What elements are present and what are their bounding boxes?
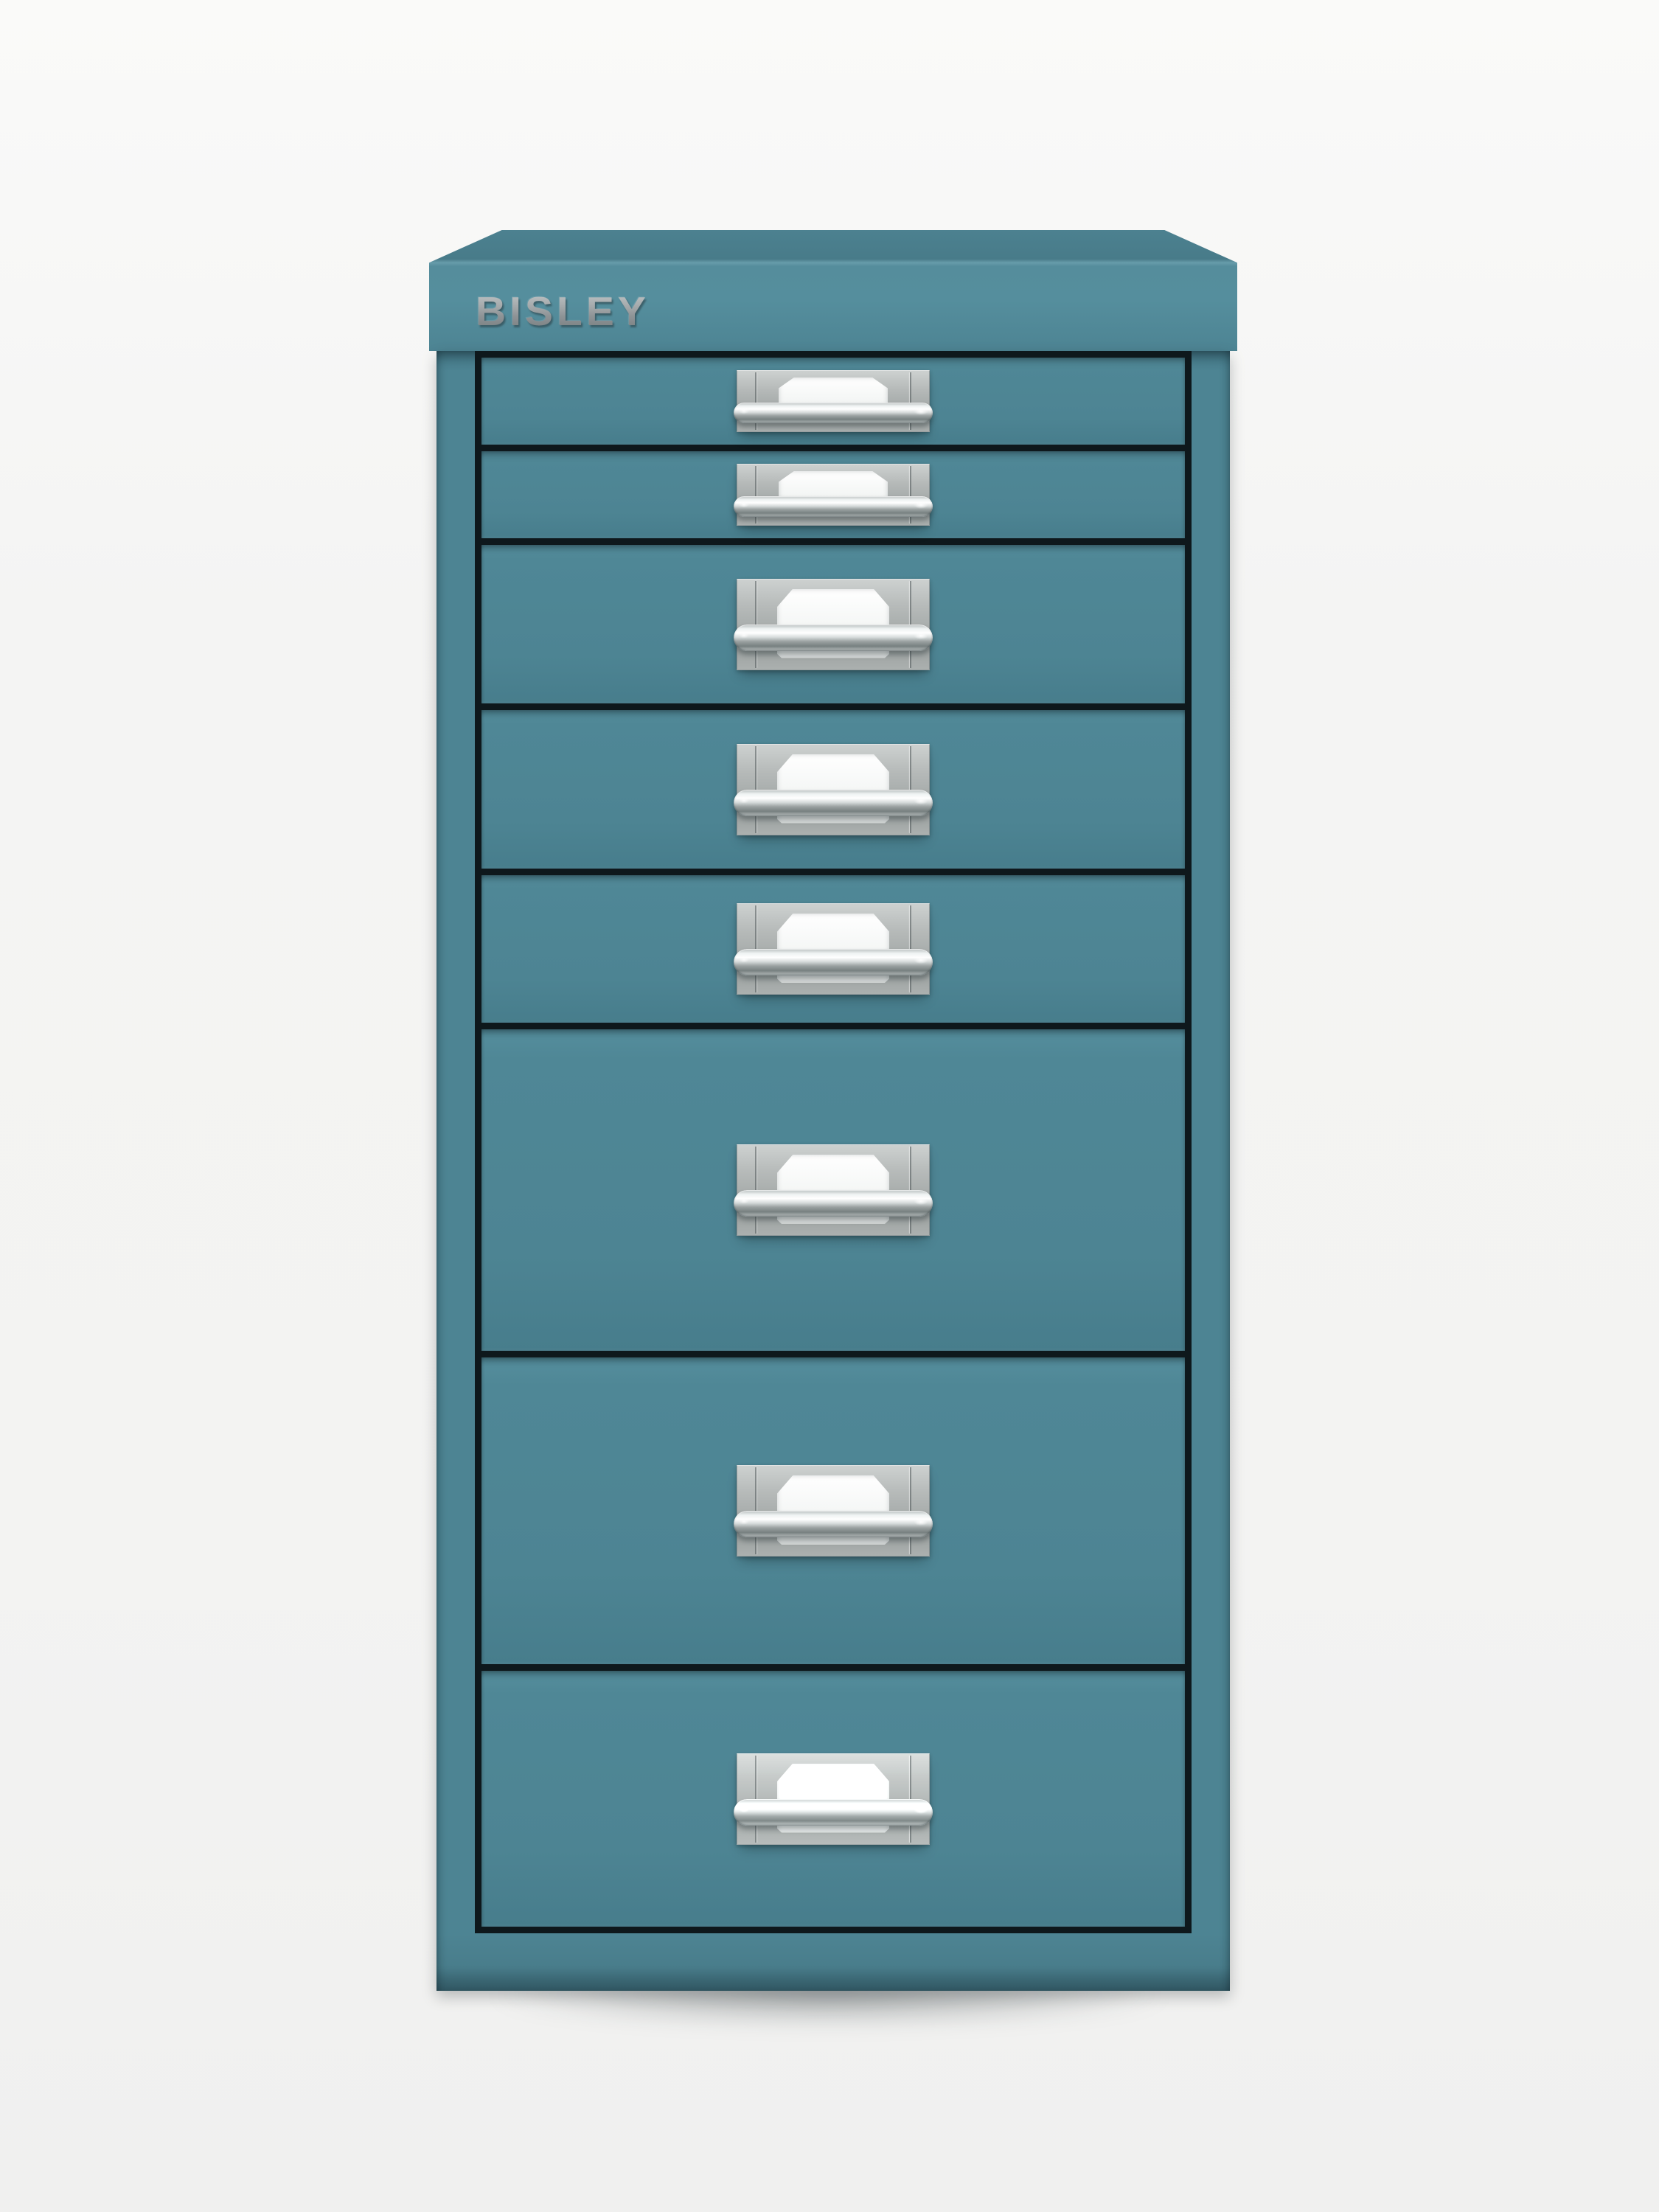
cabinet-top-cap: BISLEY [429, 230, 1237, 351]
brand-logo: BISLEY [476, 292, 650, 333]
drawer-1 [481, 358, 1185, 445]
cabinet-body [437, 351, 1230, 1991]
handle-bar [734, 1190, 933, 1217]
handle-bar [734, 496, 933, 517]
handle-bar [734, 790, 933, 816]
drawer-handle [737, 370, 930, 432]
drawer-handle [737, 744, 930, 835]
drawer-4 [481, 710, 1185, 869]
drawer-6 [481, 1029, 1185, 1351]
drawer-stack [475, 351, 1192, 1933]
drawer-handle [737, 903, 930, 995]
handle-bar [734, 625, 933, 651]
handle-bar [734, 1511, 933, 1537]
drawer-handle [737, 1753, 930, 1845]
filing-cabinet: BISLEY [429, 230, 1237, 1991]
handle-bar [734, 1799, 933, 1826]
drawer-7 [481, 1357, 1185, 1664]
cabinet-base [437, 1933, 1230, 1991]
drawer-5 [481, 875, 1185, 1023]
handle-bar [734, 949, 933, 975]
drawer-3 [481, 545, 1185, 703]
drawer-handle [737, 1144, 930, 1236]
drawer-2 [481, 451, 1185, 538]
drawer-handle [737, 464, 930, 526]
handle-bar [734, 403, 933, 423]
drawer-handle [737, 579, 930, 670]
drawer-handle [737, 1465, 930, 1557]
drawer-8 [481, 1671, 1185, 1927]
product-photo: BISLEY [0, 0, 1659, 2212]
